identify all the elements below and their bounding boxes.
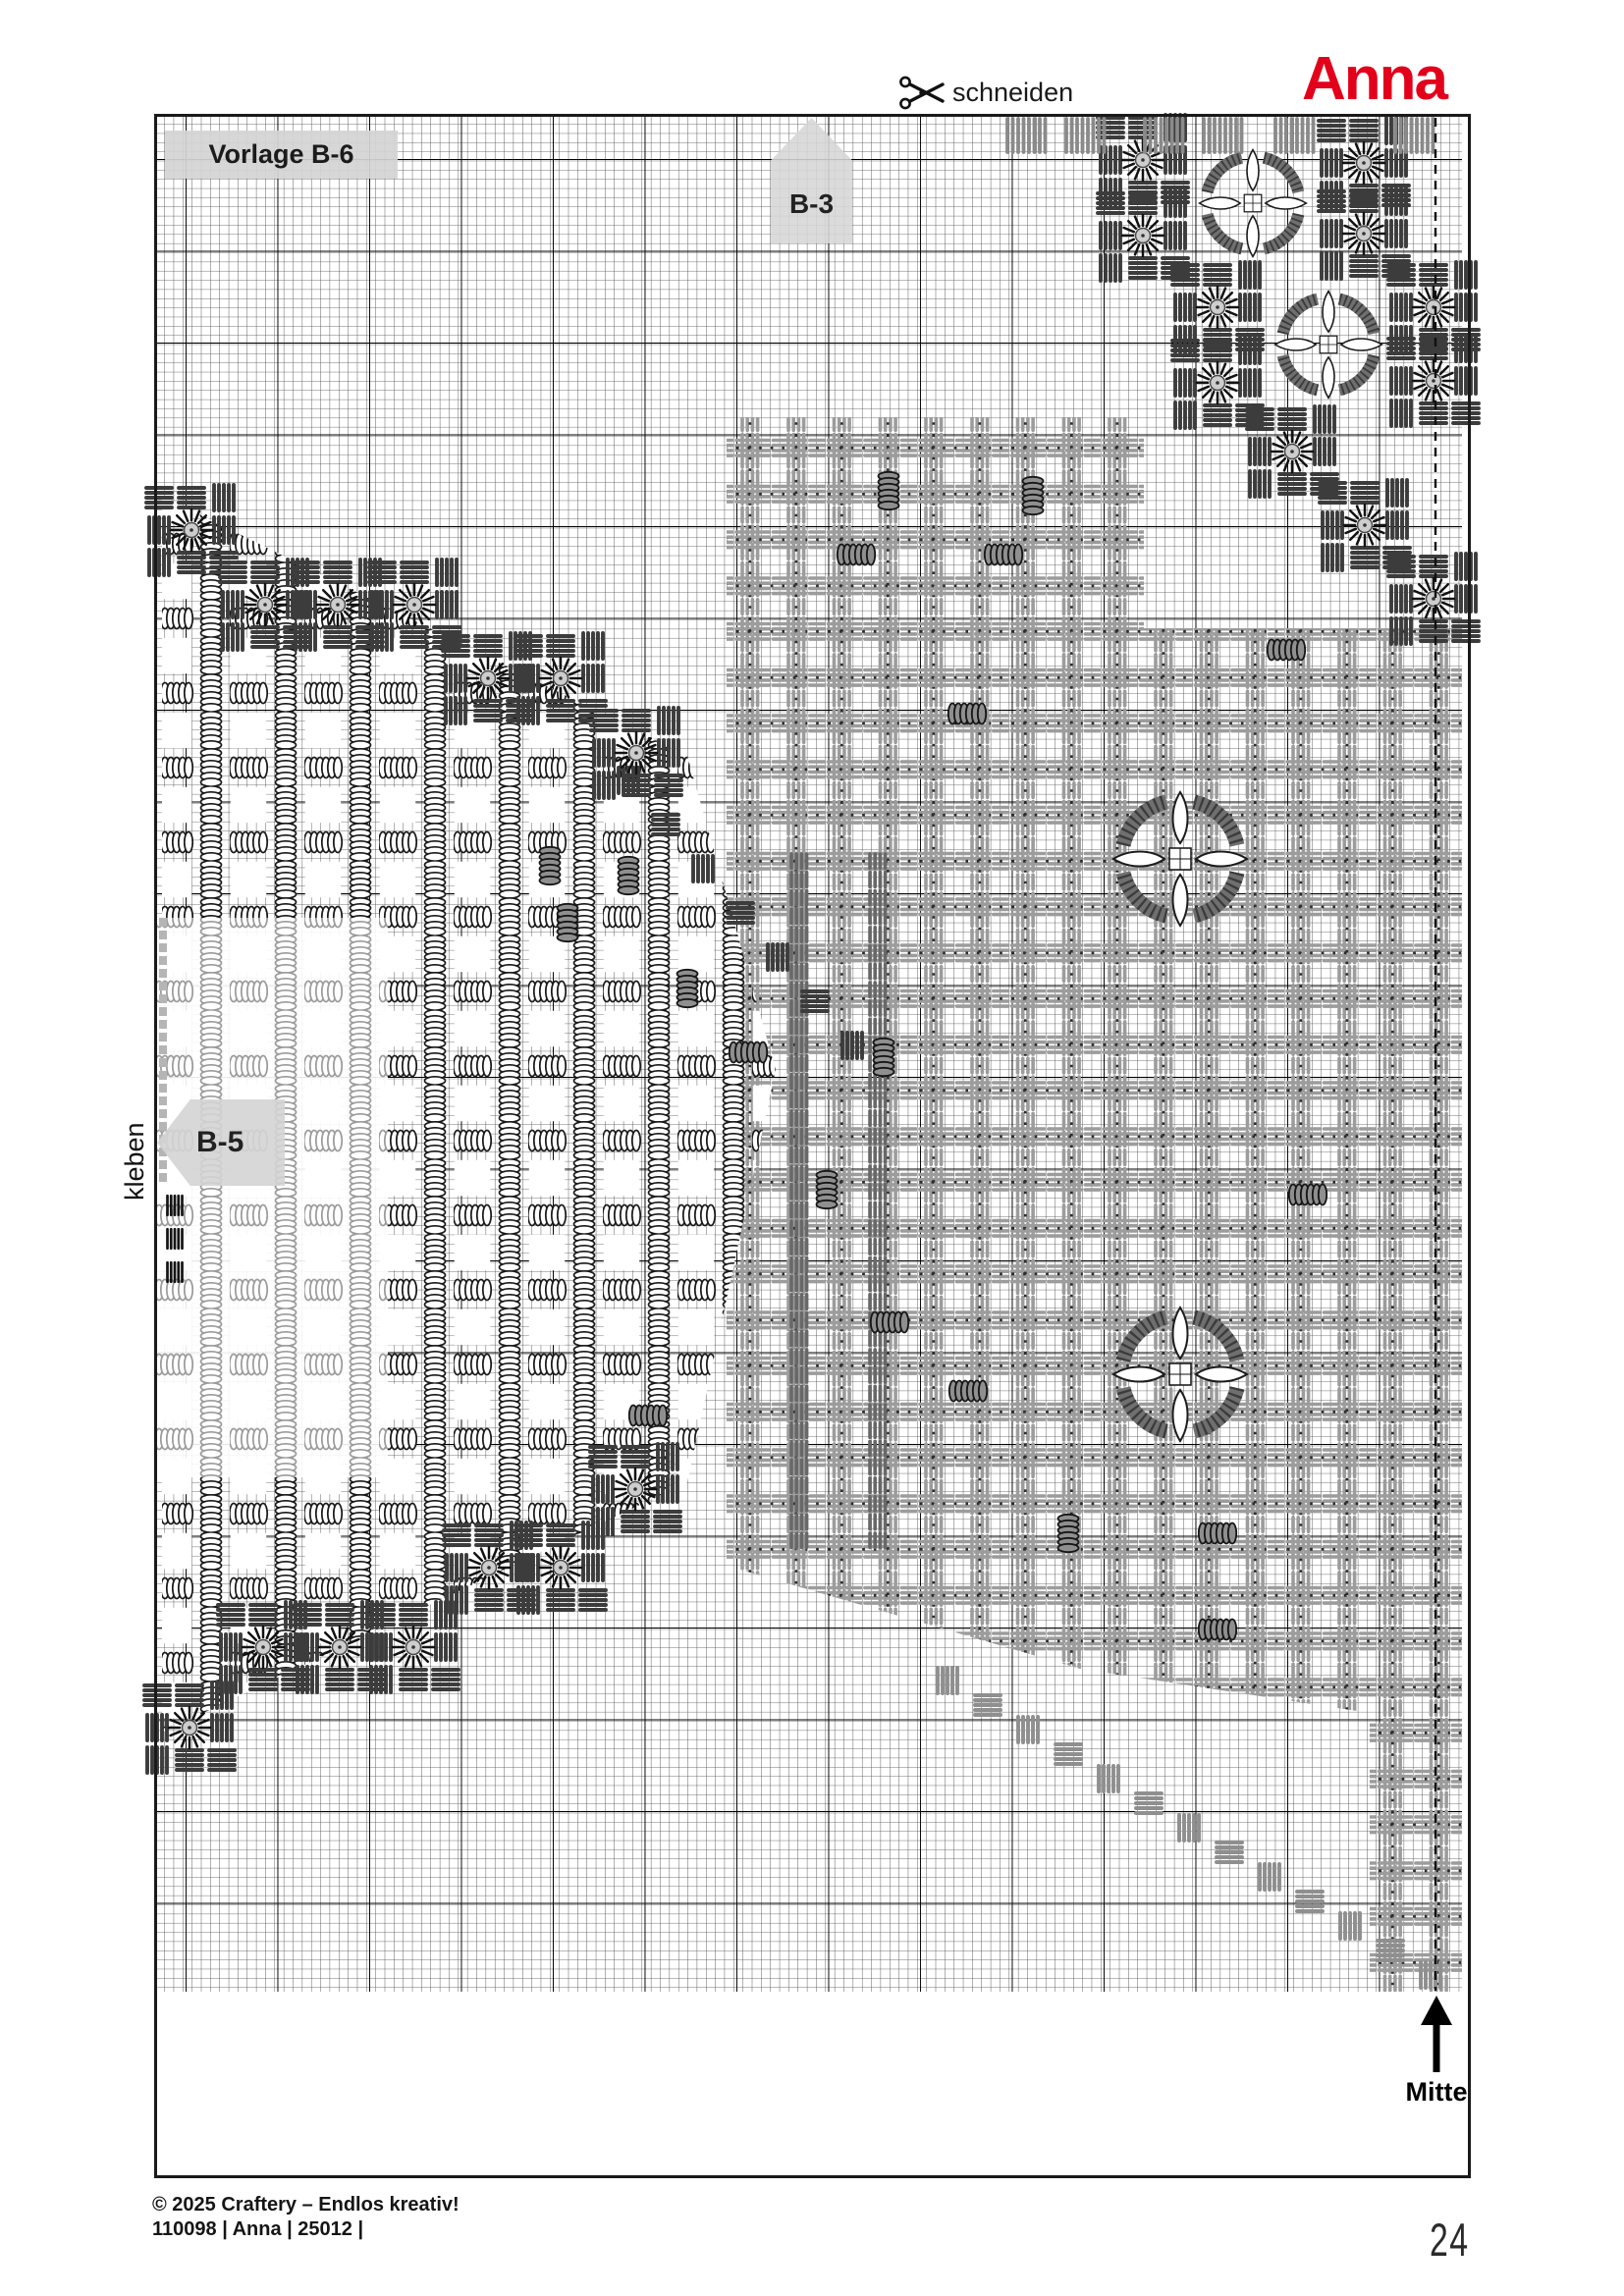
footer-copyright: © 2025 Craftery – Endlos kreativ! [152, 2193, 460, 2217]
cut-label: schneiden [952, 78, 1073, 108]
scissors-icon [899, 75, 945, 110]
up-arrow-icon [1404, 1994, 1469, 2074]
pattern-page: schneiden Anna Vorlage B-6 B-3 B-5 klebe… [0, 0, 1624, 2296]
center-label: Mitte [1404, 2077, 1469, 2108]
footer: © 2025 Craftery – Endlos kreativ! 110098… [152, 2193, 460, 2242]
brand-logo: Anna [1302, 49, 1446, 110]
cut-line-label-group: schneiden [899, 75, 1073, 110]
glue-label: kleben [120, 1093, 150, 1201]
page-number: 24 [1430, 2213, 1470, 2267]
center-marker: Mitte [1404, 1994, 1469, 2108]
footer-issue-info: 110098 | Anna | 25012 | [152, 2217, 460, 2242]
template-label: Vorlage B-6 [165, 131, 398, 179]
